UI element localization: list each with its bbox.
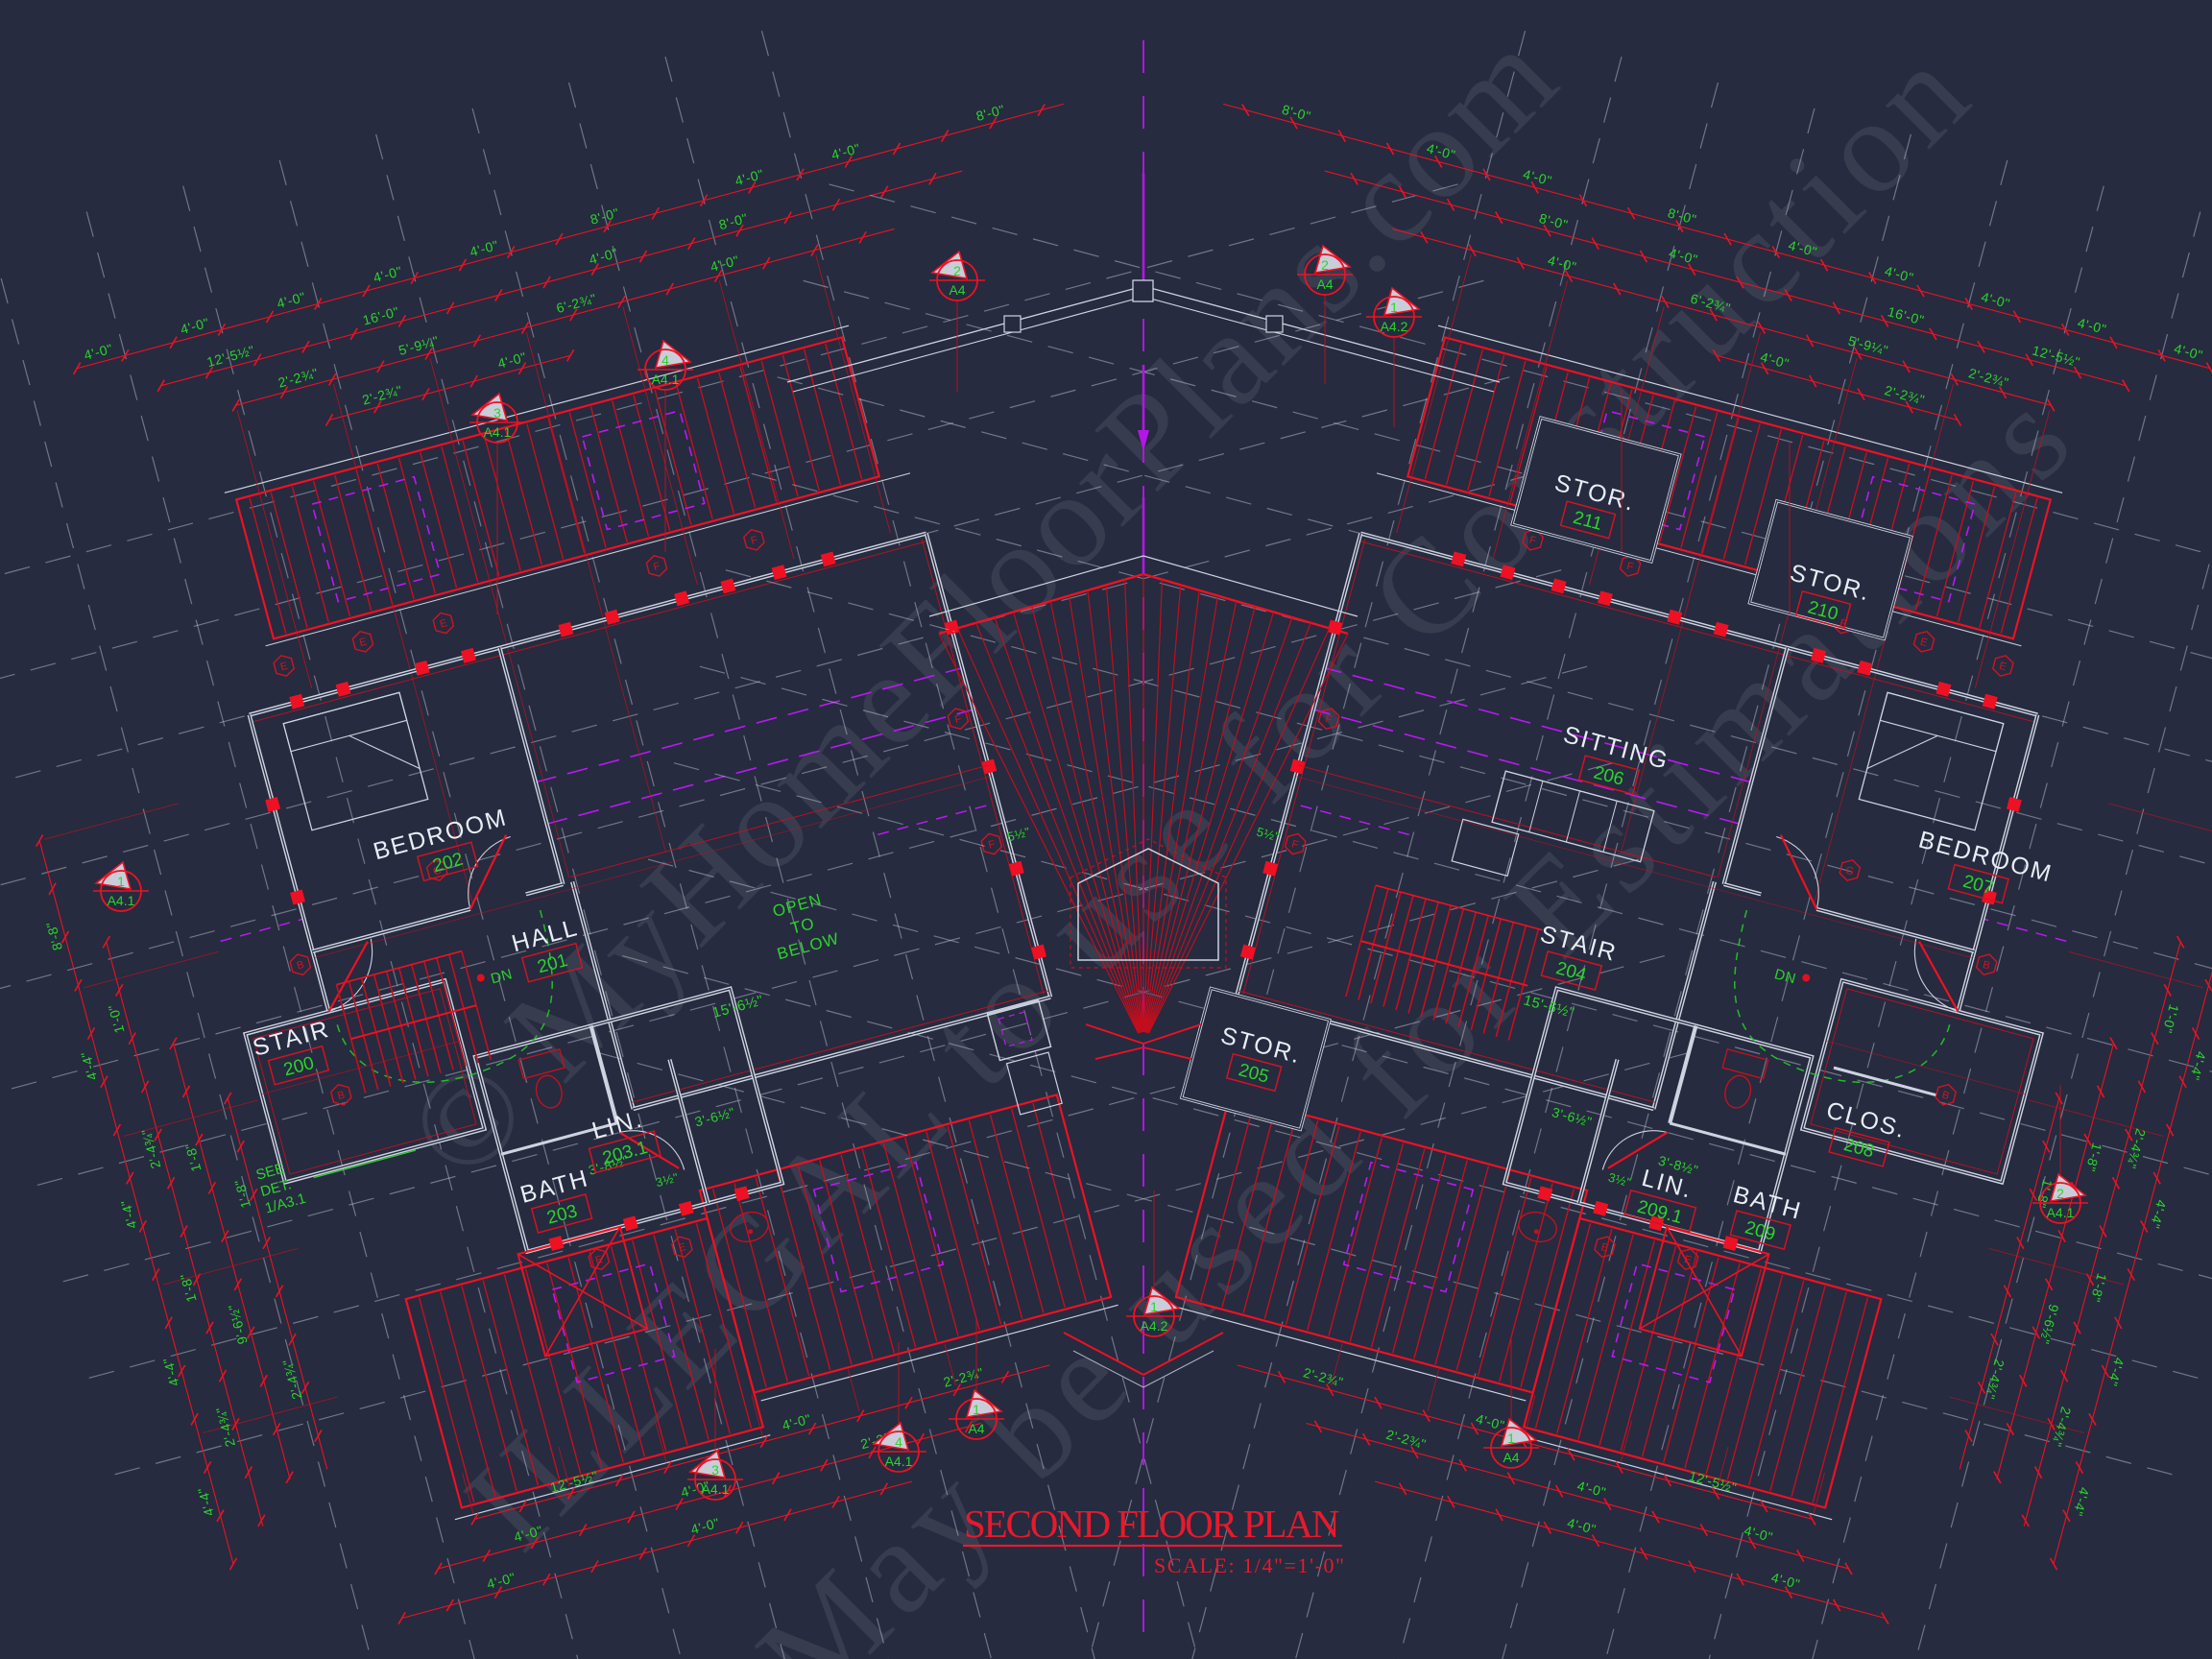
svg-text:2: 2 [2056,1186,2064,1201]
svg-text:A4: A4 [968,1421,984,1436]
svg-text:A4.1: A4.1 [484,424,512,440]
svg-text:A4.2: A4.2 [1141,1318,1168,1334]
svg-text:A4: A4 [1503,1450,1519,1465]
svg-text:1: 1 [1150,1299,1158,1314]
svg-text:3: 3 [711,1462,719,1478]
svg-text:A4.1: A4.1 [702,1481,730,1497]
svg-text:A4.1: A4.1 [652,372,680,387]
svg-text:4: 4 [895,1434,902,1450]
svg-text:2: 2 [953,263,961,278]
svg-text:A4.1: A4.1 [885,1454,913,1469]
svg-text:A4.1: A4.1 [2047,1205,2075,1220]
svg-text:1: 1 [973,1402,980,1417]
svg-text:1: 1 [1390,300,1398,315]
svg-text:1: 1 [1507,1431,1515,1446]
svg-text:A4: A4 [949,282,965,298]
svg-text:A4.1: A4.1 [108,893,135,908]
svg-text:1: 1 [117,874,125,889]
svg-text:A4.2: A4.2 [1381,319,1408,334]
svg-text:SCALE: 1/4"=1'-0": SCALE: 1/4"=1'-0" [1154,1553,1344,1577]
svg-text:4: 4 [661,352,669,368]
svg-text:A4: A4 [1316,276,1333,292]
svg-text:3: 3 [493,405,501,421]
svg-text:SECOND FLOOR PLAN: SECOND FLOOR PLAN [964,1502,1340,1546]
svg-text:2: 2 [1321,257,1329,273]
